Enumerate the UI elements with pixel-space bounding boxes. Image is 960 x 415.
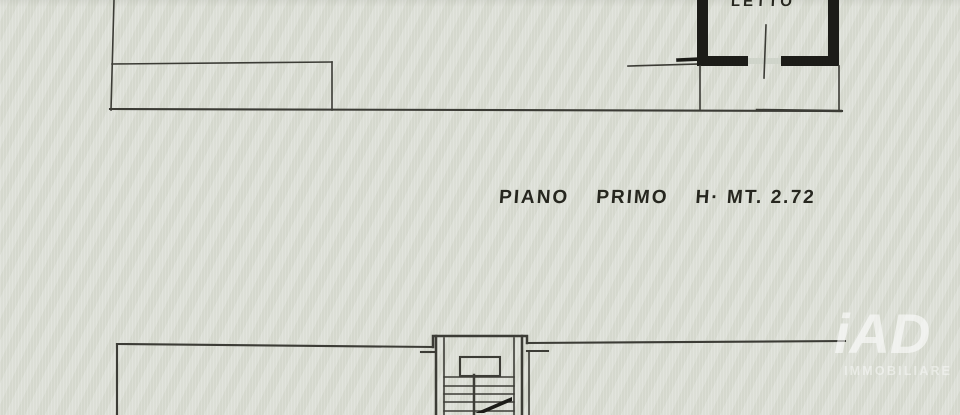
dimension-line: [764, 25, 766, 78]
railing-line: [628, 64, 700, 66]
floor-plan-canvas: [0, 0, 960, 415]
bottom-perimeter-line: [110, 109, 842, 111]
parapet-stub: [678, 59, 700, 60]
upper-floor-plan: [110, 0, 842, 111]
stair-shaft-top: [433, 336, 527, 347]
floor-caption: PIANO PRIMO H· MT. 2.72: [498, 187, 816, 209]
perimeter-line-right: [527, 341, 845, 343]
balcony-top-line: [112, 62, 332, 64]
staircase: [436, 336, 522, 415]
room-label-letto: LETTO: [731, 0, 796, 10]
stair-landing: [460, 357, 500, 376]
floor-caption-word: PRIMO: [595, 187, 669, 209]
floorplan-photo: LETTO PIANO PRIMO H· MT. 2.72 iAD IMMOBI…: [0, 0, 960, 415]
agency-logo: iAD: [834, 306, 952, 362]
letto-bottom-wall-left: [697, 56, 748, 66]
agency-watermark: iAD IMMOBILIARE: [834, 306, 952, 378]
floor-caption-word: PIANO: [498, 187, 570, 209]
perimeter-line-left: [117, 344, 433, 347]
letto-bottom-wall-right: [781, 56, 839, 66]
agency-logo-subtitle: IMMOBILIARE: [844, 365, 952, 378]
floor-caption-word: H· MT. 2.72: [695, 187, 817, 209]
bottom-perimeter-thick-segment: [757, 110, 841, 111]
left-perimeter-line: [111, 0, 114, 110]
lower-floor-plan: [117, 336, 845, 415]
